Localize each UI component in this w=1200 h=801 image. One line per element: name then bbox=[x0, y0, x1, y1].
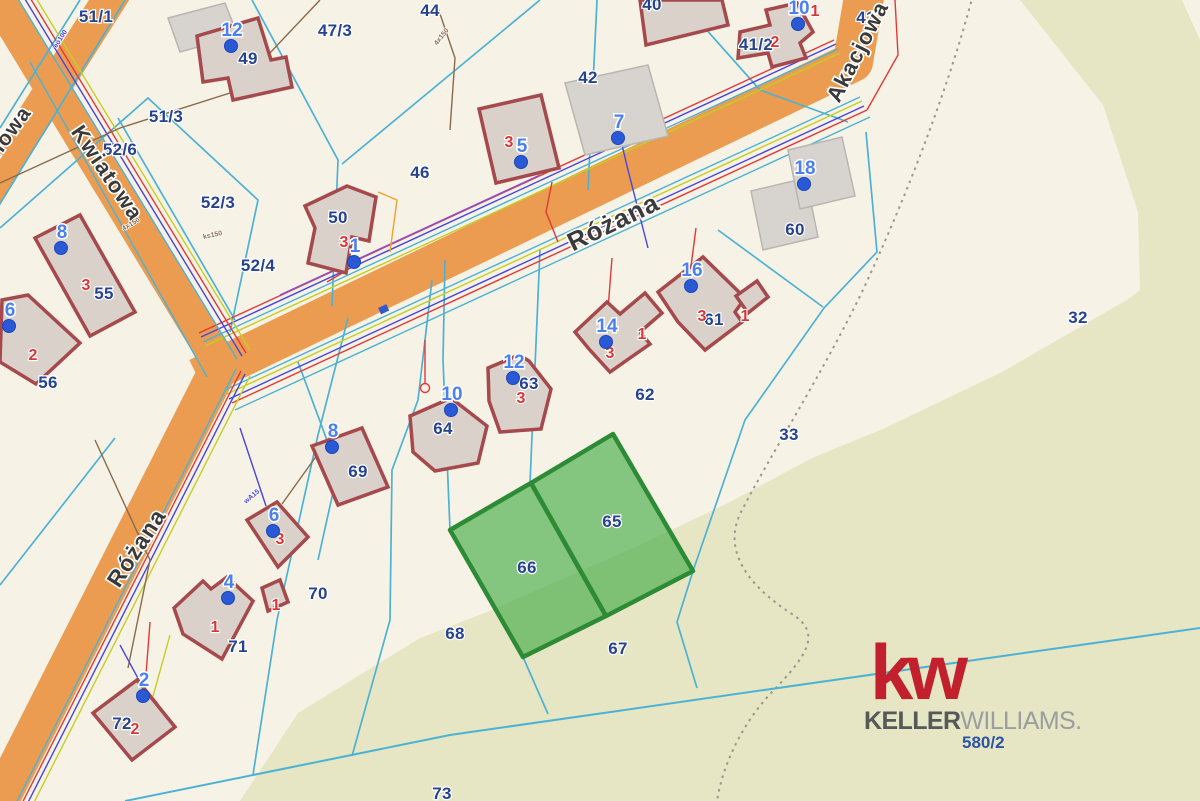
address-number: 3 bbox=[698, 308, 707, 325]
address-marker-dot[interactable] bbox=[326, 441, 339, 454]
address-marker-label[interactable]: 2 bbox=[139, 670, 150, 691]
address-marker-dot[interactable] bbox=[515, 156, 528, 169]
address-marker-label[interactable]: 7 bbox=[614, 112, 625, 133]
address-marker-label[interactable]: 5 bbox=[517, 136, 528, 157]
address-marker-dot[interactable] bbox=[507, 372, 520, 385]
address-number: 1 bbox=[811, 3, 820, 20]
address-marker-label[interactable]: 1 bbox=[350, 236, 361, 257]
address-number: 3 bbox=[505, 134, 514, 151]
parcel-label: 41/2 bbox=[739, 35, 773, 54]
address-marker-label[interactable]: 12 bbox=[503, 352, 524, 373]
parcel-label: 56 bbox=[38, 373, 58, 392]
parcel-label: 64 bbox=[433, 419, 453, 438]
address-marker-dot[interactable] bbox=[222, 592, 235, 605]
parcel-label: 33 bbox=[779, 425, 799, 444]
address-marker-label[interactable]: 12 bbox=[221, 20, 242, 41]
parcel-label: 51/3 bbox=[149, 107, 183, 126]
parcel-label: 46 bbox=[410, 163, 430, 182]
address-marker-label[interactable]: 8 bbox=[328, 421, 339, 442]
parcel-labels-under: 51/1 bbox=[79, 7, 113, 26]
address-marker-dot[interactable] bbox=[792, 18, 805, 31]
address-marker-dot[interactable] bbox=[348, 256, 361, 269]
address-marker-label[interactable]: 8 bbox=[57, 222, 68, 243]
address-marker-dot[interactable] bbox=[445, 404, 458, 417]
address-marker-dot[interactable] bbox=[600, 336, 613, 349]
address-number: 1 bbox=[211, 619, 220, 636]
address-marker-label[interactable]: 6 bbox=[5, 300, 16, 321]
map-canvas[interactable]: 51/1 4447/34951/352/652/3464241/2404152/… bbox=[0, 0, 1200, 801]
address-number: 3 bbox=[82, 277, 91, 294]
address-marker-label[interactable]: 16 bbox=[681, 260, 702, 281]
address-marker-dot[interactable] bbox=[137, 690, 150, 703]
parcel-label: 62 bbox=[635, 385, 655, 404]
parcel-label: 67 bbox=[608, 639, 628, 658]
address-marker-dot[interactable] bbox=[3, 320, 16, 333]
address-number: 3 bbox=[340, 234, 349, 251]
parcel-label: 60 bbox=[785, 220, 805, 239]
parcel-label: 32 bbox=[1068, 308, 1088, 327]
address-marker-label[interactable]: 10 bbox=[788, 0, 809, 19]
address-marker-label[interactable]: 4 bbox=[224, 572, 235, 593]
parcel-label: 73 bbox=[432, 784, 452, 801]
parcel-label: 68 bbox=[445, 624, 465, 643]
address-marker-dot[interactable] bbox=[55, 242, 68, 255]
parcel-label: 65 bbox=[602, 512, 622, 531]
parcel-label: 49 bbox=[238, 49, 258, 68]
parcel-label: 66 bbox=[517, 558, 537, 577]
address-number: 1 bbox=[741, 308, 750, 325]
address-number: 3 bbox=[517, 390, 526, 407]
parcel-label: 42 bbox=[578, 68, 598, 87]
parcel-label: 61 bbox=[704, 310, 724, 329]
address-number: 1 bbox=[638, 326, 647, 343]
parcel-label: 52/3 bbox=[201, 193, 235, 212]
address-marker-label[interactable]: 10 bbox=[441, 384, 462, 405]
parcel-label: 51/1 bbox=[79, 7, 113, 26]
parcel-label: 71 bbox=[228, 637, 248, 656]
address-number: 2 bbox=[771, 34, 780, 51]
address-marker-dot[interactable] bbox=[798, 178, 811, 191]
address-number: 2 bbox=[29, 347, 38, 364]
address-marker-label[interactable]: 18 bbox=[794, 158, 815, 179]
parcel-label: 40 bbox=[642, 0, 662, 14]
address-number: 2 bbox=[131, 721, 140, 738]
parcel-label: 47/3 bbox=[318, 21, 352, 40]
parcel-label: 55 bbox=[94, 284, 114, 303]
address-marker-label[interactable]: 6 bbox=[269, 505, 280, 526]
address-marker-dot[interactable] bbox=[225, 40, 238, 53]
address-marker-dot[interactable] bbox=[685, 280, 698, 293]
parcel-label: 50 bbox=[328, 208, 348, 227]
parcel-label: 44 bbox=[420, 1, 440, 20]
parcel-label: 69 bbox=[348, 462, 368, 481]
parcel-label: 72 bbox=[112, 714, 132, 733]
parcel-label: 70 bbox=[308, 584, 328, 603]
address-marker-dot[interactable] bbox=[612, 132, 625, 145]
address-number: 1 bbox=[272, 597, 281, 614]
address-marker-dot[interactable] bbox=[267, 525, 280, 538]
map-viewport[interactable]: 51/1 4447/34951/352/652/3464241/2404152/… bbox=[0, 0, 1200, 801]
address-marker-label[interactable]: 14 bbox=[596, 316, 618, 337]
parcel-label: 52/4 bbox=[241, 256, 276, 275]
